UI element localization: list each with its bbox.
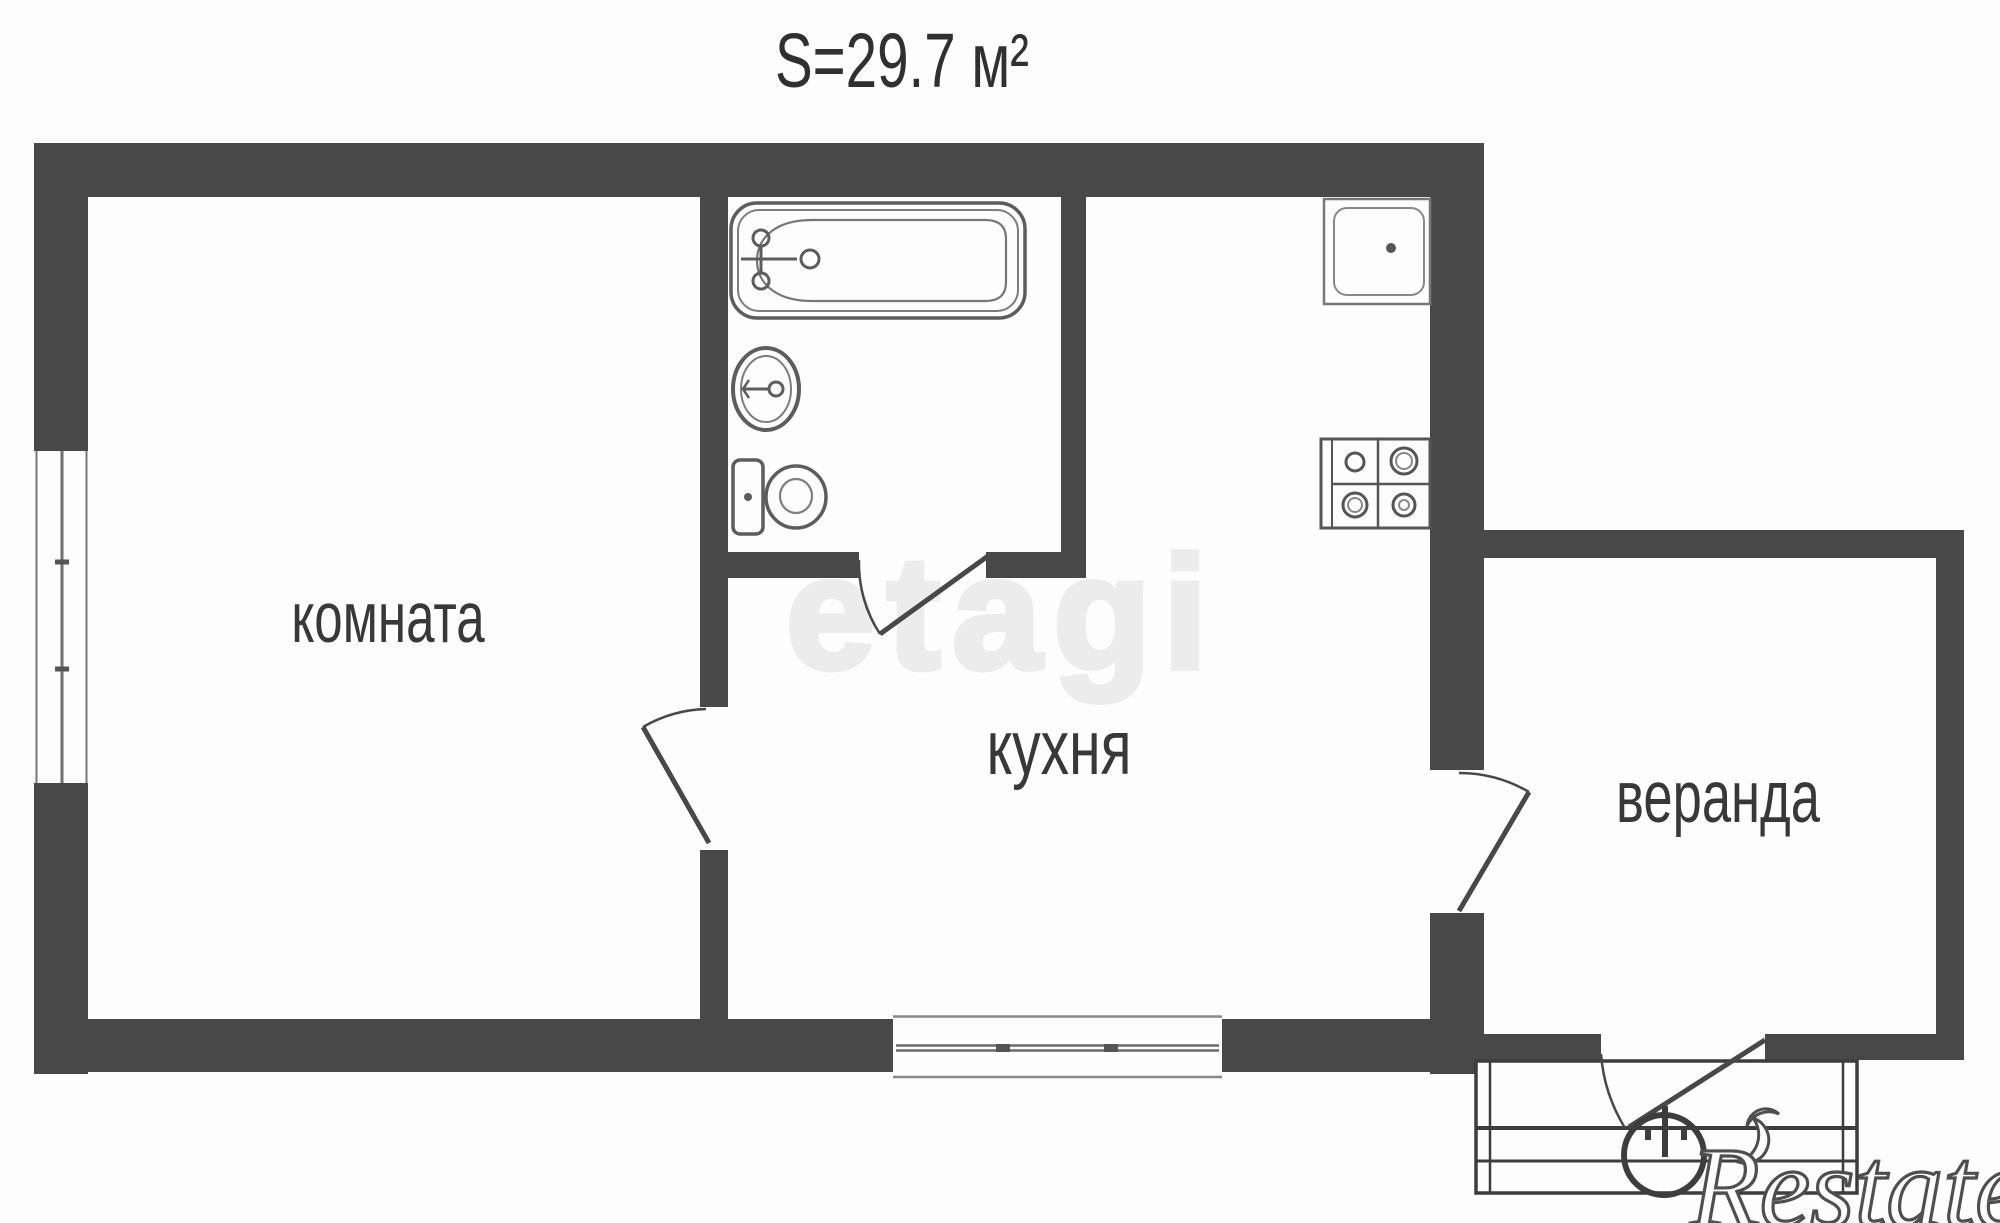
svg-text:комната: комната [291, 579, 485, 658]
svg-text:S=29.7 м²: S=29.7 м² [775, 19, 1029, 105]
svg-text:etagi: etagi [786, 523, 1219, 702]
svg-text:кухня: кухня [987, 706, 1132, 791]
svg-text:Restate: Restate [1689, 1124, 2000, 1223]
svg-text:веранда: веранда [1616, 757, 1820, 838]
